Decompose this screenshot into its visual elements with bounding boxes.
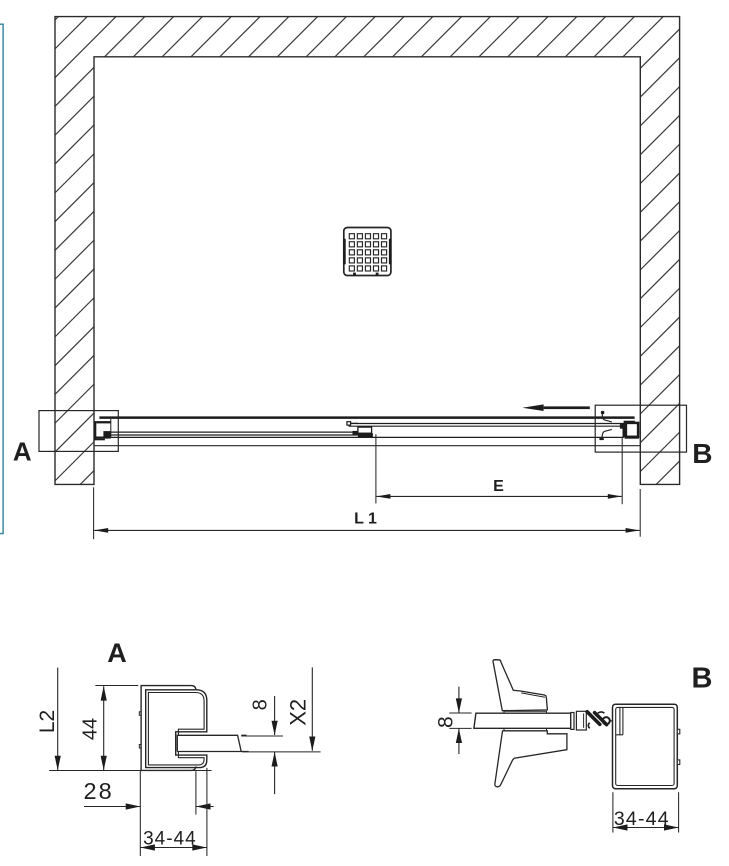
svg-text:A: A: [13, 437, 32, 467]
svg-text:8: 8: [435, 716, 458, 728]
svg-text:B: B: [692, 662, 713, 694]
svg-text:A: A: [107, 638, 127, 668]
svg-text:44: 44: [80, 718, 102, 740]
svg-text:L 1: L 1: [354, 510, 377, 527]
svg-text:L2: L2: [36, 710, 59, 733]
svg-text:E: E: [493, 478, 504, 495]
svg-text:28: 28: [84, 778, 114, 804]
svg-text:8: 8: [249, 699, 271, 710]
svg-text:B: B: [692, 438, 712, 469]
svg-text:X2: X2: [286, 699, 311, 726]
